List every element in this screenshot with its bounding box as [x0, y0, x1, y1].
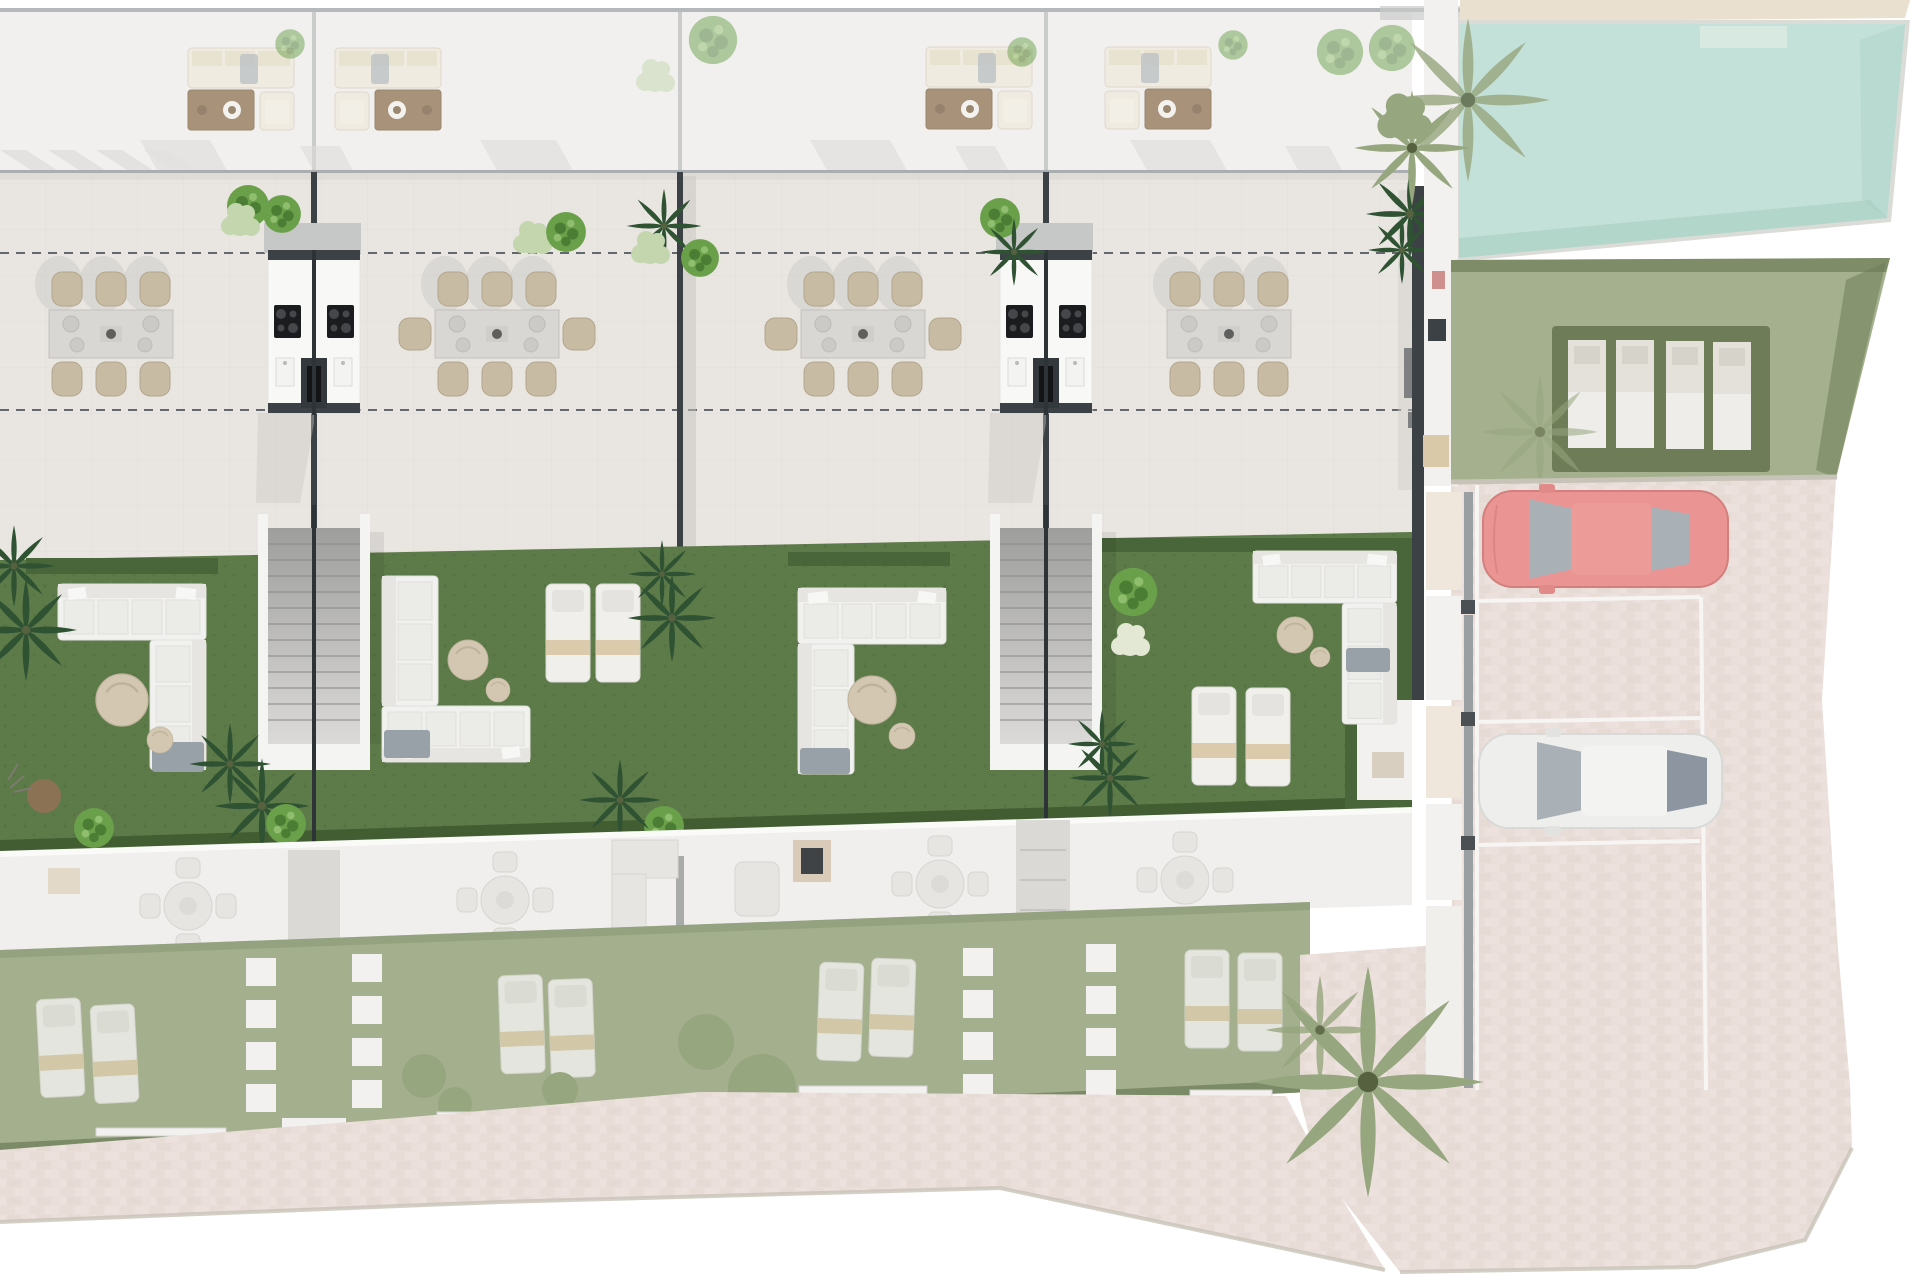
garden-palm — [628, 540, 696, 608]
kitchen-center-wall — [1044, 250, 1048, 415]
hedge-unit-4 — [1098, 538, 1412, 552]
roof-tree — [1369, 25, 1415, 71]
fire-pouf — [27, 779, 61, 813]
stair-center-wall — [1044, 505, 1048, 857]
car-white-rear-window — [1667, 750, 1707, 812]
car-mirror — [1545, 728, 1561, 737]
site-plan-rendering — [0, 0, 1920, 1280]
terrace-tree — [546, 212, 586, 252]
stair-center-wall — [312, 505, 316, 857]
pool-lounger — [1616, 340, 1654, 448]
ground-lounger — [1238, 953, 1282, 1051]
ground-sofa-unit-2 — [612, 840, 678, 878]
dining-core — [787, 256, 925, 396]
ground-unit-4-rear-patios — [1426, 492, 1462, 1086]
pouf-unit-1 — [96, 674, 148, 726]
roof-tree — [1218, 30, 1247, 59]
faded-tree-on-lawn — [1482, 374, 1598, 490]
car-red — [1483, 484, 1728, 594]
dining-set-unit-1 — [35, 256, 173, 396]
sun-lounger-unit-2 — [546, 584, 590, 682]
roof-party-wall — [678, 10, 682, 172]
topiary-tree-unit-4 — [1109, 568, 1157, 616]
roof-party-wall — [1044, 10, 1048, 172]
pouf-unit-4-small — [1310, 647, 1330, 667]
ground-armchair-unit-3 — [735, 862, 779, 916]
site-plan-canvas — [0, 0, 1920, 1280]
roof-edge-line — [0, 8, 1460, 12]
barbecue-unit — [1428, 319, 1446, 341]
sun-lounger-unit-2 — [596, 584, 640, 682]
corner-palm-frond — [1266, 976, 1375, 1085]
accent-plant — [74, 808, 114, 848]
terrace-edge-line — [0, 170, 1412, 173]
pool-lounger — [1666, 341, 1704, 449]
pouf-unit-2 — [448, 640, 488, 680]
dining-core — [421, 256, 559, 396]
dining-set-unit-4 — [1153, 256, 1291, 396]
ground-lounger — [548, 978, 595, 1077]
garden-palm — [628, 574, 716, 662]
lawn-top-hedge — [1451, 258, 1890, 272]
car-mirror — [1539, 484, 1555, 493]
roof-tree — [689, 16, 737, 64]
roof-tree — [1317, 29, 1363, 75]
sun-lounger-unit-4 — [1192, 687, 1236, 785]
terrace-tiles — [0, 172, 1412, 560]
bench-lounger — [1423, 435, 1449, 467]
terrace-top-shadow — [0, 172, 1412, 180]
car-mirror — [1545, 826, 1561, 835]
ground-lounger — [36, 998, 85, 1098]
ground-lounger — [869, 958, 916, 1057]
pool-sand-strip — [1460, 0, 1910, 22]
pouf-unit-2-small — [486, 678, 510, 702]
pouf-unit-3 — [848, 676, 896, 724]
car-white — [1479, 728, 1722, 835]
kitchen-center-wall — [312, 250, 316, 415]
car-white-roof — [1581, 746, 1669, 816]
car-red-windshield — [1529, 499, 1573, 579]
terrace-tree — [681, 239, 719, 277]
roof-tree — [1007, 37, 1036, 66]
stair-shadow — [1102, 532, 1116, 744]
garden-palm — [189, 723, 271, 805]
ground-lounger — [498, 974, 545, 1073]
doormat-unit-4 — [1372, 752, 1404, 778]
corner-palm-tree — [1252, 966, 1483, 1197]
ground-lounger — [90, 1004, 139, 1104]
landing-tree — [263, 195, 301, 233]
pouf-unit-4 — [1277, 617, 1313, 653]
pouf-unit-1-small — [147, 727, 173, 753]
ground-lounger — [817, 962, 864, 1061]
hedge-unit-4-right — [1396, 538, 1412, 703]
doormat — [48, 868, 80, 894]
hedge-unit-3 — [788, 552, 950, 566]
tv-on-sideboard — [801, 848, 823, 874]
car-red-rear-window — [1651, 507, 1689, 571]
red-doormat — [1432, 271, 1445, 289]
car-red-roof — [1571, 503, 1653, 575]
terrace-palm — [980, 218, 1048, 286]
pouf-unit-3-small — [889, 723, 915, 749]
rear-wall-segments — [1464, 492, 1473, 1088]
car-mirror — [1539, 585, 1555, 594]
ground-lounger — [1185, 950, 1229, 1048]
wall-shadow — [683, 176, 696, 556]
ground-sofa-unit-2 — [612, 874, 646, 934]
accent-plant — [266, 804, 306, 844]
sun-lounger-unit-4 — [1246, 688, 1290, 786]
roof-tree — [275, 29, 304, 58]
pool-tanning-ledge — [1700, 26, 1787, 48]
garden-palm — [1069, 737, 1151, 819]
car-white-windshield — [1537, 742, 1583, 820]
garden-palm — [579, 759, 661, 841]
pool-lounger — [1713, 342, 1751, 450]
